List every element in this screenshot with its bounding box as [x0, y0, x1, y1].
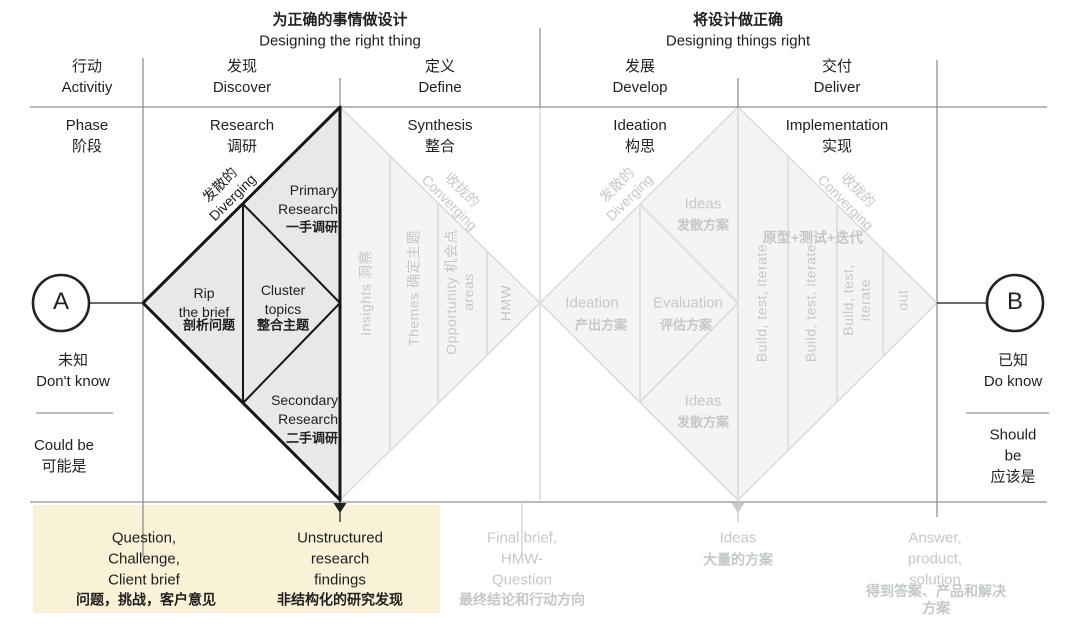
output-answer-zh: 得到答案、产品和解决方案 [864, 583, 1008, 617]
d2-col-build-2: Build, test, iterate [802, 244, 821, 362]
d2-ideas-bottom: Ideas [685, 391, 722, 412]
d1-col-insights: Insights 洞察 [357, 250, 376, 336]
output-final-brief-zh: 最终结论和行动方向 [459, 592, 585, 609]
d2-ideas-bottom-zh: 发散方案 [677, 414, 729, 431]
diamond1-output-arrowhead [334, 503, 347, 513]
d2-evaluation: Evaluation [653, 293, 723, 314]
output-final-brief: Final brief, HMW- Question [487, 528, 557, 591]
d1-primary-research-zh: 一手调研 [286, 219, 338, 236]
header-right-zh: 将设计做正确 [693, 10, 783, 31]
output-ideas-zh: 大量的方案 [703, 552, 773, 569]
d2-col-build-1: Build, test, iterate [753, 244, 772, 362]
d2-ideation: Ideation [565, 293, 618, 314]
d1-cluster-topics-zh: 整合主题 [257, 317, 309, 334]
col-discover: 发现 Discover [213, 56, 271, 98]
d2-ideas-top-zh: 发散方案 [677, 217, 729, 234]
endpoint-a-letter: A [53, 290, 69, 314]
d1-cluster-topics: Cluster topics [261, 281, 305, 319]
phase-research: Research 调研 [210, 115, 274, 157]
d2-ideas-top: Ideas [685, 194, 722, 215]
d1-rip-the-brief-zh: 剖析问题 [183, 317, 235, 334]
d1-secondary-research-zh: 二手调研 [286, 430, 338, 447]
a-know-label: 未知 Don't know [36, 350, 110, 392]
d2-col-out: out [894, 290, 913, 311]
b-know-label: 已知 Do know [984, 350, 1042, 392]
col-deliver: 交付 Deliver [814, 56, 861, 98]
phase-implementation: Implementation 实现 [786, 115, 889, 157]
d2-evaluation-zh: 评估方案 [660, 317, 712, 334]
d1-col-opportunity: Opportunity 机会点 areas [443, 229, 477, 355]
output-question-zh: 问题，挑战，客户意见 [76, 592, 216, 609]
header-left-en: Designing the right thing [259, 31, 421, 52]
endpoint-b-letter: B [1007, 290, 1023, 314]
d2-col-build-3: Build, test, iterate [840, 264, 874, 335]
d1-col-hmw: HMW [497, 285, 516, 322]
b-mode-label: Should be 应该是 [980, 425, 1047, 488]
d2-ideation-zh: 产出方案 [575, 317, 627, 334]
output-unstructured-zh: 非结构化的研究发现 [277, 592, 403, 609]
col-define: 定义 Define [418, 56, 461, 98]
phase-synthesis: Synthesis 整合 [407, 115, 472, 157]
output-ideas: Ideas [720, 528, 757, 549]
a-mode-label: Could be 可能是 [34, 435, 94, 477]
diamond2-output-arrowhead [732, 503, 745, 513]
output-unstructured: Unstructured research findings [297, 528, 383, 591]
d1-secondary-research: Secondary Research [271, 391, 338, 429]
d1-primary-research: Primary Research [278, 181, 338, 219]
col-activity: 行动 Activitiy [62, 56, 113, 98]
phase-label: Phase 阶段 [66, 115, 109, 157]
phase-ideation: Ideation 构思 [613, 115, 666, 157]
col-develop: 发展 Develop [612, 56, 667, 98]
output-question: Question, Challenge, Client brief [108, 528, 180, 591]
output-answer: Answer, product, solution [908, 528, 962, 591]
header-right-en: Designing things right [666, 31, 810, 52]
d1-col-themes: Themes 确定主题 [405, 230, 424, 346]
double-diamond-diagram: 为正确的事情做设计 Designing the right thing 将设计做… [0, 0, 1080, 626]
header-left-zh: 为正确的事情做设计 [272, 10, 407, 31]
